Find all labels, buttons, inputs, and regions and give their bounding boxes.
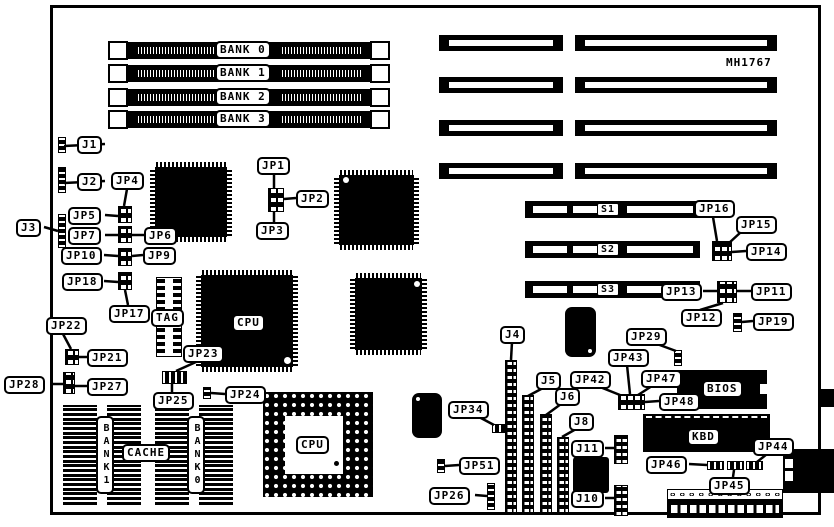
bank3-label: BANK 3 (215, 110, 271, 128)
callout-jp42: JP42 (570, 371, 611, 389)
callout-jp6: JP6 (144, 227, 177, 245)
callout-jp24: JP24 (225, 386, 266, 404)
callout-jp44: JP44 (753, 438, 794, 456)
callout-jp17: JP17 (109, 305, 150, 323)
callout-jp19: JP19 (753, 313, 794, 331)
callout-jp11: JP11 (751, 283, 792, 301)
cache-bank0-label: BANK0 (187, 416, 205, 494)
callout-jp29: JP29 (626, 328, 667, 346)
callout-jp2: JP2 (296, 190, 329, 208)
cache-label: CACHE (122, 444, 170, 462)
callout-jp26: JP26 (429, 487, 470, 505)
bios-label: BIOS (702, 380, 743, 398)
cpu-socket-label: CPU (296, 436, 329, 454)
callout-jp1: JP1 (257, 157, 290, 175)
callout-jp51: JP51 (459, 457, 500, 475)
callout-j3: J3 (16, 219, 41, 237)
callout-j8: J8 (569, 413, 594, 431)
callout-jp3: JP3 (256, 222, 289, 240)
callout-jp28: JP28 (4, 376, 45, 394)
callout-j10: J10 (571, 490, 604, 508)
callout-j4: J4 (500, 326, 525, 344)
callout-jp43: JP43 (608, 349, 649, 367)
callout-jp4: JP4 (111, 172, 144, 190)
callout-j11: J11 (571, 440, 604, 458)
bank0-label: BANK 0 (215, 41, 271, 59)
callout-jp5: JP5 (68, 207, 101, 225)
callout-jp15: JP15 (736, 216, 777, 234)
callout-j1: J1 (77, 136, 102, 154)
s1-label: S1 (597, 203, 619, 216)
callout-j6: J6 (555, 388, 580, 406)
callout-jp47: JP47 (641, 370, 682, 388)
callout-jp21: JP21 (87, 349, 128, 367)
bank1-label: BANK 1 (215, 64, 271, 82)
bank2-label: BANK 2 (215, 88, 271, 106)
callout-jp14: JP14 (746, 243, 787, 261)
cache-bank1-label: BANK1 (96, 416, 114, 494)
callout-jp12: JP12 (681, 309, 722, 327)
kbd-label: KBD (687, 428, 720, 446)
callout-jp18: JP18 (62, 273, 103, 291)
callout-jp27: JP27 (87, 378, 128, 396)
callout-jp22: JP22 (46, 317, 87, 335)
callout-jp46: JP46 (646, 456, 687, 474)
s3-label: S3 (597, 283, 619, 296)
callout-jp9: JP9 (143, 247, 176, 265)
callout-j2: J2 (77, 173, 102, 191)
callout-jp48: JP48 (659, 393, 700, 411)
tag-label: TAG (151, 309, 184, 327)
part-number: MH1767 (726, 56, 772, 69)
callout-jp7: JP7 (68, 227, 101, 245)
callout-jp25: JP25 (153, 392, 194, 410)
callout-jp13: JP13 (661, 283, 702, 301)
motherboard-diagram: MH1767 BANK 0 BANK 1 BANK 2 BANK 3 (0, 0, 834, 527)
cpu-qfp-label: CPU (232, 314, 265, 332)
callout-jp23: JP23 (183, 345, 224, 363)
s2-label: S2 (597, 243, 619, 256)
callout-jp10: JP10 (61, 247, 102, 265)
callout-jp45: JP45 (709, 477, 750, 495)
callout-jp34: JP34 (448, 401, 489, 419)
callout-jp16: JP16 (694, 200, 735, 218)
